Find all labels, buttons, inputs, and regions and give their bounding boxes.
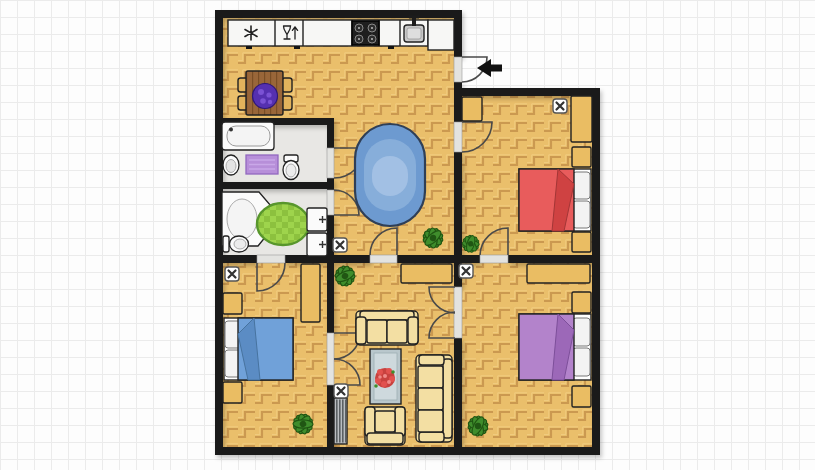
flower-bouquet (374, 368, 395, 388)
wardrobe[interactable] (571, 96, 592, 142)
cooktop[interactable] (352, 21, 379, 45)
wardrobe[interactable] (462, 97, 482, 121)
round-green-rug[interactable] (257, 203, 309, 245)
wall-kitchen-right-b (454, 82, 462, 96)
wall-bath-right-b (327, 178, 334, 190)
wall-mid-horiz-c (397, 255, 480, 263)
floorplan-drawing (0, 0, 815, 470)
floorplan-canvas (0, 0, 815, 470)
toilet[interactable] (223, 236, 249, 252)
bath-mat[interactable] (246, 155, 278, 174)
wardrobe[interactable] (301, 264, 320, 322)
purple-plant-centerpiece[interactable] (253, 84, 278, 109)
wall-mid-horiz-a (215, 255, 257, 263)
wall-mid-horiz-d (508, 255, 600, 263)
ceiling-lamp-icon[interactable] (334, 384, 348, 398)
blue-oval-rug[interactable] (355, 124, 425, 226)
wall-mid-vert-d (454, 338, 462, 447)
nightstand[interactable] (572, 292, 591, 313)
wall-bottom (215, 447, 600, 455)
toilet[interactable] (283, 155, 299, 180)
double-bed-purple[interactable] (519, 314, 591, 380)
wall-right (592, 88, 600, 455)
nightstand[interactable] (572, 232, 591, 252)
armchair[interactable] (365, 407, 405, 445)
radiator[interactable] (334, 398, 347, 444)
nightstand[interactable] (223, 382, 242, 403)
wall-redroom-top (454, 88, 600, 96)
wall-bath-divider (223, 182, 334, 189)
wall-kitchen-right-a (454, 10, 462, 57)
countertop-corner[interactable] (428, 20, 454, 50)
nightstand[interactable] (223, 293, 242, 314)
bathtub[interactable] (222, 122, 274, 150)
wall-top (215, 10, 462, 18)
loveseat[interactable] (356, 311, 418, 345)
wall-mid-vert-a (454, 96, 462, 122)
ceiling-lamp-icon[interactable] (333, 238, 347, 252)
nightstand[interactable] (572, 386, 591, 407)
double-bed-red[interactable] (519, 169, 591, 231)
ceiling-lamp-icon[interactable] (225, 267, 239, 281)
sofa-3seat[interactable] (416, 355, 452, 442)
countertop[interactable] (228, 20, 428, 46)
double-bed-blue[interactable] (224, 318, 293, 380)
sideboard[interactable] (401, 264, 452, 283)
ceiling-lamp-icon[interactable] (553, 99, 567, 113)
coffee-table[interactable] (370, 349, 401, 404)
ceiling-lamp-icon[interactable] (459, 264, 473, 278)
wall-bath-right-a (327, 118, 334, 148)
wall-bluebed-right (327, 385, 334, 447)
wash-basin[interactable] (223, 155, 239, 175)
nightstand[interactable] (572, 147, 591, 167)
hallway (355, 124, 425, 226)
wall-mid-vert-b (454, 152, 462, 255)
wall-mid-horiz-b (285, 255, 370, 263)
wall-bath-right-c (327, 215, 334, 333)
wardrobe[interactable] (527, 264, 590, 283)
